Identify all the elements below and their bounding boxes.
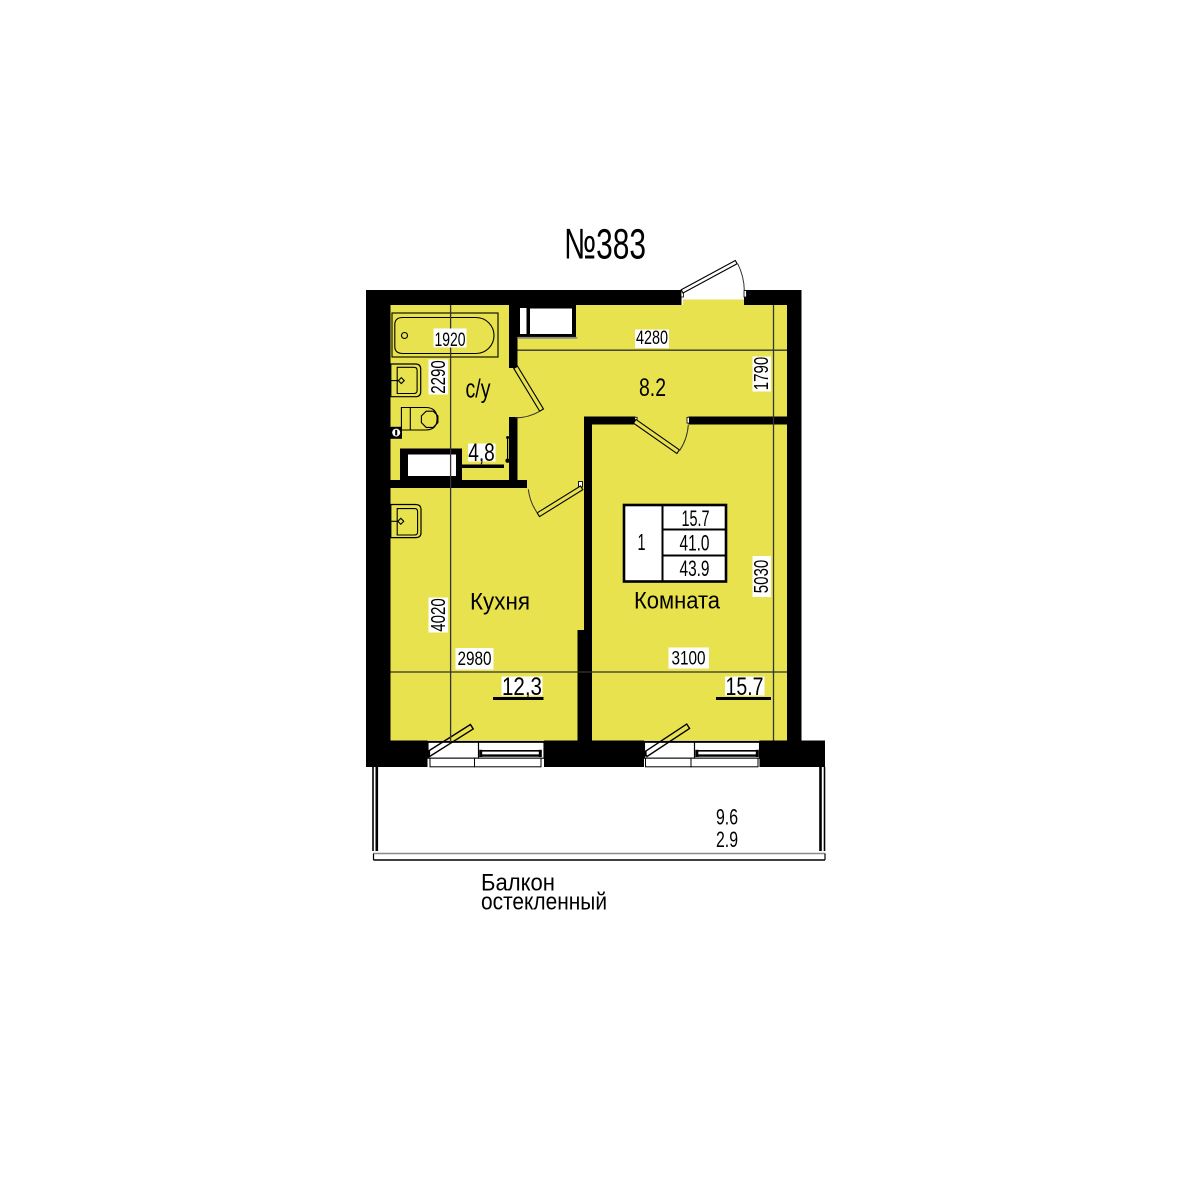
svg-text:12,3: 12,3 — [502, 673, 542, 701]
svg-text:3100: 3100 — [672, 648, 706, 670]
svg-text:4280: 4280 — [636, 327, 668, 349]
svg-text:2980: 2980 — [458, 648, 492, 670]
svg-text:4,8: 4,8 — [468, 439, 495, 467]
svg-text:8.2: 8.2 — [639, 374, 666, 402]
svg-text:2.9: 2.9 — [716, 827, 738, 852]
svg-text:5030: 5030 — [751, 560, 773, 594]
svg-text:2290: 2290 — [428, 360, 450, 394]
svg-text:1920: 1920 — [435, 329, 466, 351]
svg-text:остекленный: остекленный — [481, 889, 607, 916]
svg-text:9.6: 9.6 — [716, 805, 738, 830]
svg-text:Кухня: Кухня — [470, 589, 530, 616]
svg-text:4020: 4020 — [428, 598, 450, 632]
svg-text:15.7: 15.7 — [682, 506, 710, 531]
svg-text:1: 1 — [638, 529, 646, 555]
svg-text:41.0: 41.0 — [680, 531, 710, 556]
svg-text:15.7: 15.7 — [726, 673, 764, 701]
svg-text:Комната: Комната — [634, 588, 721, 615]
svg-text:№383: №383 — [564, 221, 646, 269]
svg-text:1790: 1790 — [751, 357, 773, 391]
svg-text:43.9: 43.9 — [680, 556, 710, 581]
svg-text:с/у: с/у — [466, 376, 491, 404]
